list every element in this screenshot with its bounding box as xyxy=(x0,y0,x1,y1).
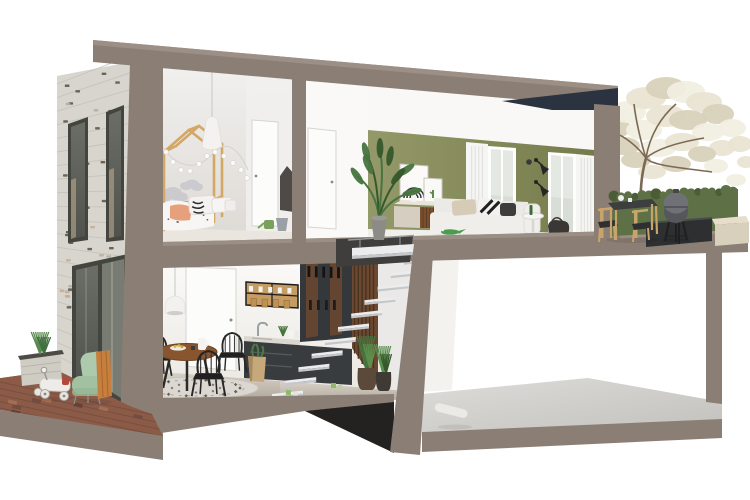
brick-speckle xyxy=(65,85,70,87)
bedroom-door xyxy=(252,120,278,226)
orange-blanket xyxy=(96,350,112,399)
hedge-bump xyxy=(700,188,711,199)
fairy-ball xyxy=(171,160,176,165)
block-front xyxy=(715,222,749,246)
roller-shadow xyxy=(438,425,472,430)
shelf-cup xyxy=(278,288,282,294)
chair-leg xyxy=(239,358,240,371)
window-reveal-glow xyxy=(71,178,76,239)
toy-block xyxy=(338,385,342,389)
hedge-bump xyxy=(728,187,738,197)
wheel-hub xyxy=(44,393,47,396)
kitchen-door-handle xyxy=(230,319,233,322)
shelf-jar xyxy=(273,300,279,308)
toy-block xyxy=(286,390,291,395)
jug xyxy=(198,338,206,350)
chair-leg xyxy=(200,379,201,394)
counter-jar xyxy=(295,331,299,338)
chair-seat-edge xyxy=(72,388,102,396)
brick-speckle xyxy=(63,174,68,176)
bedroom xyxy=(158,67,294,246)
hedge-bump xyxy=(708,187,715,194)
dark-pot xyxy=(376,372,391,391)
bottle xyxy=(330,267,333,278)
curtain xyxy=(576,154,596,240)
shelf-cup xyxy=(287,288,291,294)
toy-bucket xyxy=(276,218,288,231)
bottle xyxy=(325,300,328,310)
chair-seat xyxy=(218,352,246,358)
steering-wheel xyxy=(41,367,47,373)
brick-speckle xyxy=(63,120,68,122)
bottle xyxy=(337,267,340,278)
bottle xyxy=(308,266,311,277)
hallway xyxy=(306,80,368,246)
roof-terrace xyxy=(598,185,749,247)
facade-window-left xyxy=(68,117,88,243)
brick-speckle xyxy=(68,288,73,290)
brick-speckle xyxy=(115,81,120,83)
hallway-door xyxy=(308,128,336,229)
hallway-door-handle xyxy=(331,181,334,184)
window-reveal-glow xyxy=(109,168,114,238)
bottle xyxy=(333,300,336,310)
fairy-ball xyxy=(205,154,210,159)
car-seat-back xyxy=(62,378,69,385)
bronze-pot xyxy=(358,368,377,390)
chair-leg xyxy=(216,379,217,394)
grill-dome xyxy=(664,193,689,214)
chair-leg xyxy=(648,228,649,240)
table-leg xyxy=(656,206,657,234)
bottle xyxy=(322,267,325,278)
toy-block xyxy=(331,383,336,388)
chair-leg xyxy=(599,228,600,242)
house-cutaway-scene xyxy=(0,0,750,500)
pillow-graphic xyxy=(477,198,502,216)
white-pillow xyxy=(225,200,236,211)
shelf-cup xyxy=(249,286,253,292)
hedge-bump xyxy=(686,188,696,198)
cup xyxy=(628,198,632,202)
bottle xyxy=(317,300,320,310)
chair-seat xyxy=(193,373,225,379)
brick-speckle xyxy=(67,306,72,308)
facade-window-right xyxy=(106,105,124,242)
cup xyxy=(191,346,195,350)
pillow-dark xyxy=(500,203,516,216)
pendant-underside xyxy=(167,311,183,315)
wall-ornament xyxy=(526,159,532,165)
crocodile-eye xyxy=(442,230,444,232)
fairy-ball xyxy=(213,150,218,155)
brick-speckle xyxy=(75,90,80,92)
shelf-cup xyxy=(259,287,263,293)
brick-speckle xyxy=(109,247,114,249)
chair-shadow xyxy=(72,399,112,405)
toy-watering-can xyxy=(264,220,274,229)
bottle xyxy=(315,266,318,277)
green-bottle xyxy=(530,205,533,215)
shelf-jar xyxy=(251,299,257,307)
grill-vent-cap xyxy=(673,189,679,193)
bedroom-cut-column xyxy=(292,79,306,248)
brick-speckle xyxy=(95,127,100,129)
brick-speckle xyxy=(87,248,92,250)
brick-speckle xyxy=(60,290,65,292)
polka-dot xyxy=(203,214,205,216)
brick-speckle xyxy=(102,73,107,75)
sideboard-front-beige xyxy=(394,206,420,228)
chair-leg xyxy=(633,230,634,242)
fairy-ball xyxy=(197,162,202,167)
chair-leg xyxy=(225,358,226,371)
foliage-blob xyxy=(661,156,691,172)
brick-speckle xyxy=(90,226,95,228)
polka-dot xyxy=(177,221,179,223)
fairy-ball xyxy=(231,161,236,166)
fairy-ball xyxy=(179,168,184,173)
brick-speckle xyxy=(66,103,71,105)
brick-speckle xyxy=(66,259,71,261)
fairy-ball xyxy=(222,154,227,159)
fairy-ball xyxy=(239,168,244,173)
palm-pot-rim xyxy=(371,216,387,221)
pillow-beige xyxy=(451,199,476,216)
palm-leaf xyxy=(377,138,384,158)
wheel-hub xyxy=(63,395,66,398)
fruit xyxy=(174,345,177,348)
brick-speckle xyxy=(65,291,70,293)
cloud-decal xyxy=(191,183,203,191)
fairy-ball xyxy=(245,176,250,181)
side-table-top xyxy=(523,213,544,219)
brick-speckle xyxy=(106,255,111,257)
fairy-ball xyxy=(164,150,169,155)
house-cutaway-illustration xyxy=(0,0,750,500)
shelf-jar xyxy=(262,299,268,307)
chair-leg xyxy=(614,226,615,240)
brick-speckle xyxy=(101,161,106,163)
brick-speckle xyxy=(65,295,70,297)
shelf-cup xyxy=(268,287,272,293)
open-shelves xyxy=(246,282,298,308)
fruit xyxy=(181,345,184,348)
hedge-bump xyxy=(631,193,638,200)
kettle xyxy=(618,195,624,201)
brick-speckle xyxy=(102,200,107,202)
polka-dot xyxy=(167,218,169,220)
foliage-blob xyxy=(726,174,746,186)
counter-jar xyxy=(288,330,293,338)
brick-speckle xyxy=(99,254,104,256)
shelf-jar xyxy=(284,300,290,308)
table-shadow xyxy=(606,237,658,243)
bottle xyxy=(309,300,312,310)
brick-speckle xyxy=(94,109,99,111)
chair-leg xyxy=(163,361,164,374)
cloud-decal xyxy=(172,192,188,202)
fairy-ball xyxy=(188,169,193,174)
stone-block xyxy=(712,216,749,246)
kamado-grill xyxy=(662,189,690,243)
bedroom-door-handle xyxy=(255,175,258,178)
terrace-support-column xyxy=(706,250,722,404)
polka-dot xyxy=(206,219,208,221)
fruit xyxy=(178,344,181,347)
